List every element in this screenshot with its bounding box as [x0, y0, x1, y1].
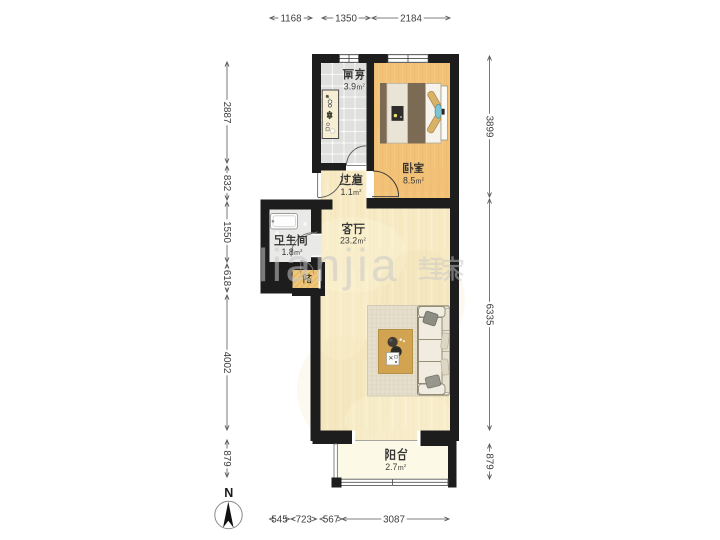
svg-text:2887: 2887 — [221, 102, 232, 124]
svg-text:6335: 6335 — [483, 304, 494, 326]
svg-text:832: 832 — [221, 175, 232, 191]
svg-text:879: 879 — [483, 453, 494, 469]
svg-text:23.2: 23.2 — [340, 235, 357, 245]
svg-text:1.8: 1.8 — [282, 247, 294, 257]
svg-text:618: 618 — [221, 270, 232, 287]
svg-text:N: N — [224, 486, 233, 500]
svg-text:4002: 4002 — [221, 352, 232, 374]
svg-text:545: 545 — [271, 514, 288, 525]
svg-text:723: 723 — [296, 514, 313, 525]
svg-text:8.5: 8.5 — [403, 176, 415, 186]
svg-text:1168: 1168 — [280, 13, 302, 24]
svg-text:1550: 1550 — [221, 221, 232, 243]
svg-text:3087: 3087 — [383, 514, 405, 525]
svg-text:1350: 1350 — [335, 13, 357, 24]
svg-text:3899: 3899 — [483, 116, 494, 138]
svg-text:1.1: 1.1 — [341, 187, 353, 197]
svg-text:2184: 2184 — [400, 13, 422, 24]
svg-text:3.9: 3.9 — [344, 81, 356, 91]
svg-text:567: 567 — [323, 514, 339, 525]
svg-text:2.7: 2.7 — [385, 462, 397, 472]
svg-text:lianjia: lianjia — [258, 239, 400, 291]
svg-text:879: 879 — [221, 450, 232, 466]
